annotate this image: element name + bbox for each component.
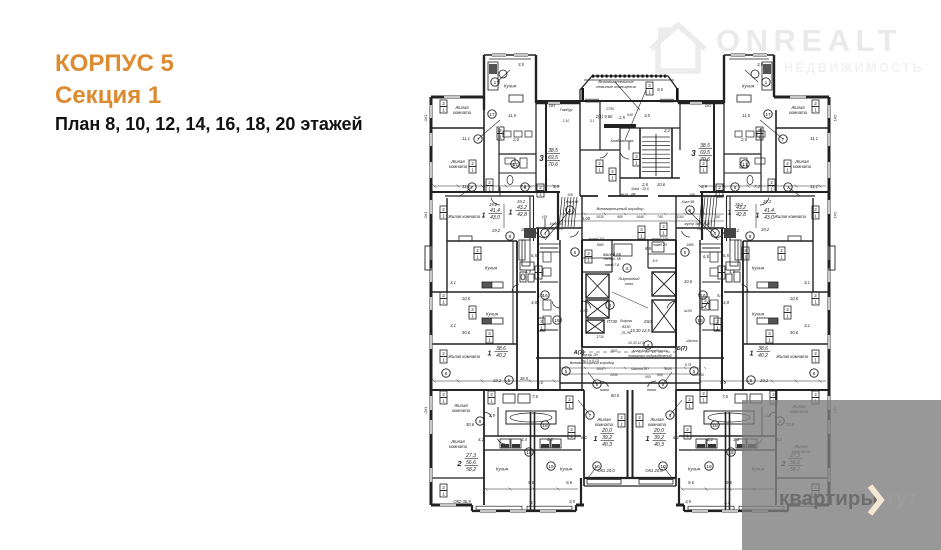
svg-text:тут: тут <box>885 487 917 510</box>
svg-text:квартиры: квартиры <box>779 487 878 510</box>
